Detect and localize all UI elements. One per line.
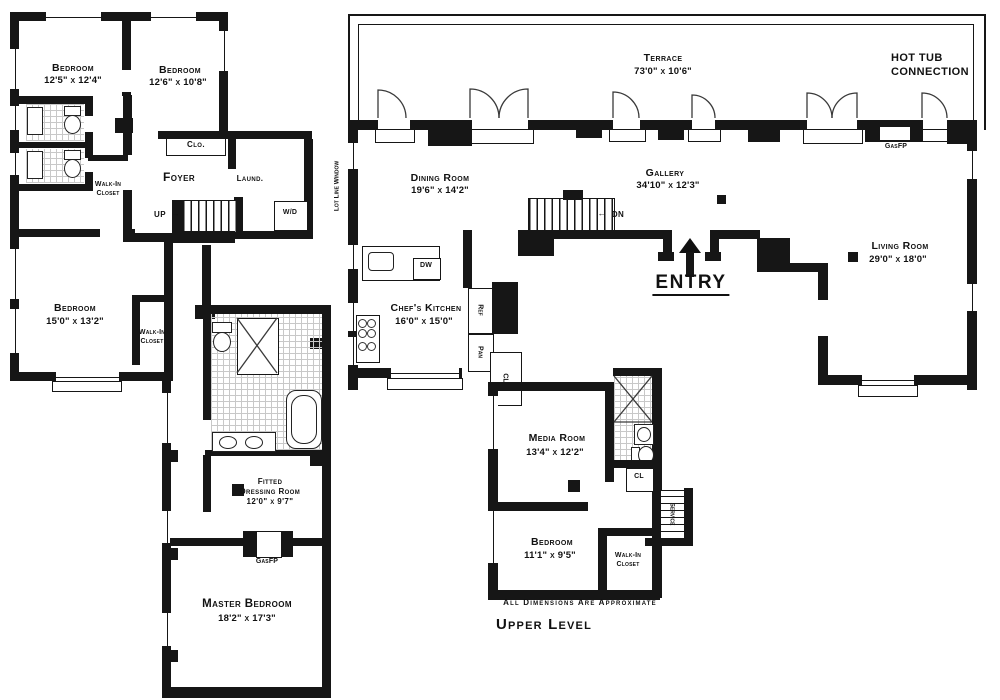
wall-pier [310, 455, 322, 466]
shower-glass [614, 376, 652, 422]
wall [598, 528, 607, 598]
closet2-label: CL [634, 473, 644, 480]
window [10, 105, 19, 131]
window [10, 248, 19, 300]
door-swing [378, 90, 408, 118]
window [162, 612, 171, 647]
stair-landing [172, 231, 235, 243]
wall [126, 229, 135, 237]
wall [18, 184, 93, 191]
fireplace-opening [879, 126, 911, 141]
room-label-foyer: Foyer [163, 170, 195, 184]
door-swing [692, 95, 715, 118]
window-sill [52, 381, 122, 392]
room-label-terrace: Terrace [644, 52, 683, 64]
stair-landing [518, 230, 554, 256]
room-dims-bedroom2: 12'6" x 10'8" [149, 77, 207, 88]
window [861, 375, 915, 385]
vanity-sink [219, 436, 237, 449]
wall [553, 230, 663, 239]
window [10, 48, 19, 90]
room-dims-living: 29'0" x 18'0" [869, 254, 927, 265]
dn-label: DN [612, 210, 624, 219]
window [10, 152, 19, 176]
room-dims-bedroom1: 12'5" x 12'4" [44, 75, 102, 86]
wall [818, 336, 828, 375]
wall-pier [162, 548, 178, 560]
wall [463, 230, 472, 288]
gas-fireplace-label-upper: GasFP [885, 143, 907, 150]
door-sill [466, 129, 534, 144]
door-jamb [122, 66, 131, 70]
column [717, 195, 726, 204]
bathtub-basin [291, 395, 317, 444]
room-label-master: Master Bedroom [202, 598, 292, 610]
fireplace-jamb [243, 531, 256, 557]
wall-pier [576, 120, 602, 138]
closet-label: Clo. [187, 140, 205, 149]
entry-label: ENTRY [652, 272, 729, 296]
wall [818, 263, 828, 300]
stove-burner [358, 342, 367, 351]
window [488, 395, 498, 450]
wall [718, 230, 760, 239]
room-dims-master: 18'2" x 17'3" [218, 613, 276, 624]
dishwasher-label: DW [420, 262, 432, 269]
door-swing [499, 89, 528, 118]
stairs-up [182, 200, 237, 233]
column [848, 252, 858, 262]
wall [605, 460, 660, 468]
stove-burner [367, 342, 376, 351]
door-swing [832, 93, 857, 118]
door-sill [609, 129, 646, 142]
refrigerator-label: Ref [477, 304, 484, 315]
room-label-dining: Dining Room [411, 172, 470, 184]
door-swing [922, 93, 947, 118]
up-arrow-icon: → [172, 209, 180, 218]
door-sill [375, 129, 415, 143]
column [568, 480, 580, 492]
room-dims-media: 13'4" x 12'2" [526, 447, 584, 458]
closet-nook [626, 468, 654, 492]
wall [18, 142, 93, 148]
wall [85, 96, 93, 116]
wall [195, 305, 330, 314]
dn-arrow-icon: ← [598, 209, 606, 218]
floor-plan: Bedroom 12'5" x 12'4" Bedroom 12'6" x 10… [0, 0, 1000, 700]
wall-pier [162, 650, 178, 662]
sink-basin [637, 427, 651, 442]
wall [488, 502, 588, 511]
wall-pier [658, 120, 684, 140]
fireplace [256, 531, 282, 558]
room-label-bedroom1: Bedroom [52, 62, 94, 74]
room-label-gallery: Gallery [646, 167, 685, 179]
room-dims-bedroom4: 11'1" x 9'5" [524, 550, 576, 561]
wall [10, 229, 100, 237]
wall [492, 282, 518, 334]
dressing-room-dims: 12'0" x 9'7" [247, 497, 294, 506]
wall [162, 687, 331, 698]
room-dims-gallery: 34'10" x 12'3" [636, 180, 699, 191]
walk-in-closet2-line2: Closet [141, 338, 164, 345]
window [10, 308, 19, 354]
wall-pier [428, 120, 472, 146]
wall [18, 96, 93, 104]
gas-fireplace-label: GasFP [256, 558, 278, 565]
wall [203, 455, 211, 512]
entry-arrow-icon [679, 238, 701, 253]
walk-in-closet3-line1: Walk-In [615, 552, 641, 559]
dressing-room-label2: Dressing Room [240, 487, 300, 496]
window-sill [387, 378, 463, 390]
hot-tub-note-line1: HOT TUB [891, 52, 943, 64]
room-label-bedroom4: Bedroom [531, 536, 573, 548]
wall [202, 245, 211, 313]
hot-tub-note-line2: CONNECTION [891, 66, 969, 78]
wall [164, 237, 173, 380]
window [150, 12, 197, 21]
stair-newel [563, 190, 583, 200]
wall [598, 528, 660, 536]
walk-in-closet2-line1: Walk-In [139, 329, 165, 336]
window [967, 150, 977, 180]
wall [228, 139, 236, 169]
window [967, 283, 977, 312]
wall-pier [162, 450, 178, 462]
door-swing [807, 93, 832, 118]
wall [85, 172, 93, 188]
lot-line-window-label: Lot Line Window [334, 161, 341, 211]
wall [88, 155, 128, 161]
wall [684, 488, 693, 543]
door-sill [803, 129, 863, 144]
kitchen-sink [368, 252, 394, 271]
toilet [64, 159, 81, 178]
door-swing [470, 89, 499, 118]
level-title: Upper Level [496, 616, 592, 633]
room-dims-dining: 19'6" x 14'2" [411, 185, 469, 196]
door-swing [613, 92, 639, 118]
window [219, 30, 228, 72]
toilet [64, 115, 81, 134]
disclaimer: All Dimensions Are Approximate [503, 598, 657, 607]
room-dims-kitchen: 16'0" x 15'0" [395, 316, 453, 327]
stove-burner [358, 329, 367, 338]
washer-dryer [274, 201, 308, 231]
window [488, 505, 498, 564]
window [45, 12, 102, 21]
wall-pier [748, 120, 780, 142]
room-label-living: Living Room [871, 240, 928, 252]
sink [27, 107, 43, 135]
walk-in-closet3-line2: Closet [617, 561, 640, 568]
wall [322, 305, 331, 695]
closet1-label: CL [502, 373, 509, 382]
window [162, 392, 171, 444]
room-dims-terrace: 73'0" x 10'6" [634, 66, 692, 77]
wall [123, 95, 132, 155]
room-label-bedroom3: Bedroom [54, 302, 96, 314]
door-sill [688, 129, 721, 142]
wall [122, 21, 131, 66]
wall [658, 252, 674, 261]
walk-in-closet1-line2: Closet [97, 190, 120, 197]
laundry-label: Laund. [237, 174, 264, 183]
stove-burner [367, 319, 376, 328]
room-label-bedroom2: Bedroom [159, 64, 201, 76]
walk-in-closet1-line1: Walk-In [95, 181, 121, 188]
room-label-media: Media Room [529, 432, 586, 444]
up-label: UP [154, 210, 166, 219]
washer-dryer-label: W/D [283, 209, 297, 216]
wall [645, 538, 693, 546]
room-label-kitchen: Chef's Kitchen [391, 302, 462, 314]
vanity-sink [245, 436, 263, 449]
wall [158, 131, 312, 139]
dressing-room-label1: Fitted [258, 477, 283, 486]
service-label: Service [669, 503, 676, 526]
wall [488, 382, 613, 391]
window-sill [858, 385, 918, 397]
pantry-label: Pan [477, 346, 484, 358]
stove-burner [358, 319, 367, 328]
wall [203, 313, 211, 420]
room-dims-bedroom3: 15'0" x 13'2" [46, 316, 104, 327]
shower-glass [237, 318, 277, 373]
window [55, 372, 120, 381]
window [348, 244, 358, 270]
stove-burner [367, 329, 376, 338]
window [348, 142, 358, 170]
sink [27, 151, 43, 179]
window [390, 368, 460, 378]
wall [705, 252, 721, 261]
toilet [213, 332, 231, 352]
